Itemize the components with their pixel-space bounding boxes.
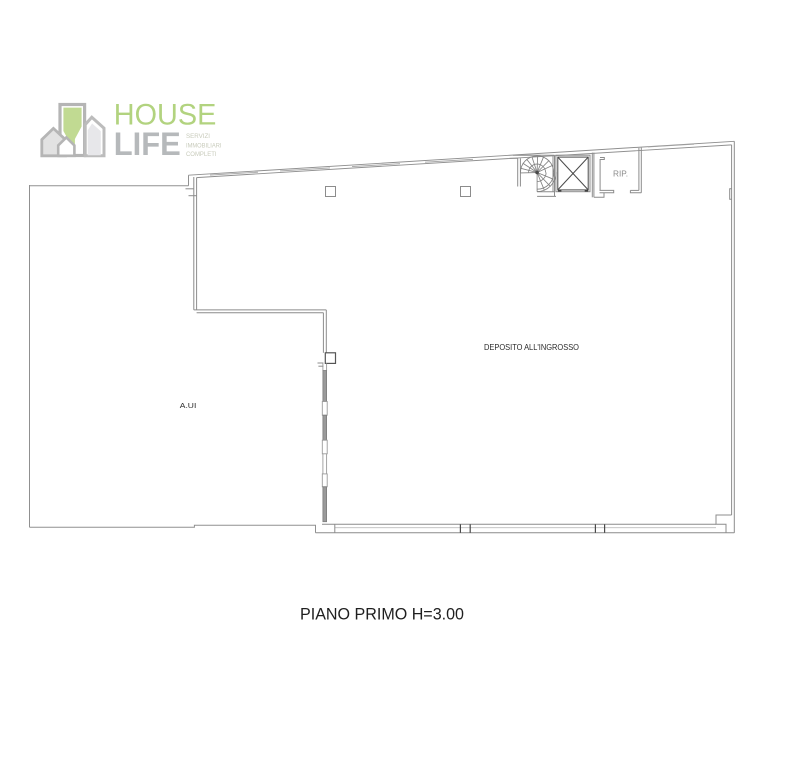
- svg-text:COMPLETI: COMPLETI: [186, 151, 217, 158]
- svg-text:PIANO PRIMO H=3.00: PIANO PRIMO H=3.00: [300, 605, 464, 624]
- svg-text:DEPOSITO ALL'INGROSSO: DEPOSITO ALL'INGROSSO: [484, 342, 579, 352]
- svg-text:LIFE: LIFE: [114, 126, 181, 162]
- svg-text:RIP.: RIP.: [613, 169, 628, 178]
- svg-text:A.UI: A.UI: [180, 401, 197, 410]
- svg-text:IMMOBILIARI: IMMOBILIARI: [186, 142, 222, 149]
- svg-text:SERVIZI: SERVIZI: [186, 133, 210, 140]
